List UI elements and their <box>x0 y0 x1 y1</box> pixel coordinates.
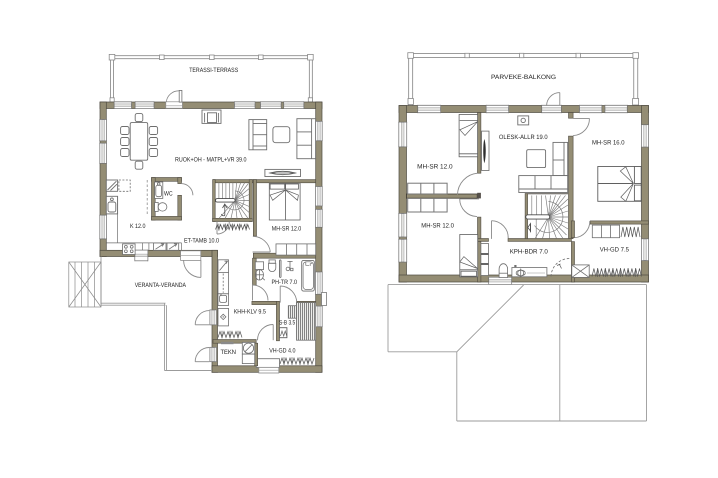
svg-text:MH-SR 12.0: MH-SR 12.0 <box>421 223 454 230</box>
svg-text:PARVEKE-BALKONG: PARVEKE-BALKONG <box>491 74 556 81</box>
svg-text:TEKN: TEKN <box>221 349 237 356</box>
svg-text:OLESK-ALLR 19.0: OLESK-ALLR 19.0 <box>499 134 548 141</box>
svg-text:VERANTA-VERANDA: VERANTA-VERANDA <box>135 282 187 289</box>
svg-text:S-B 3.5: S-B 3.5 <box>279 320 296 327</box>
svg-text:ET-TAMB 10.0: ET-TAMB 10.0 <box>184 238 219 245</box>
svg-text:WC: WC <box>164 191 173 198</box>
svg-text:PH-TR 7.0: PH-TR 7.0 <box>272 279 298 286</box>
svg-text:VH-GD 7.5: VH-GD 7.5 <box>600 246 630 253</box>
svg-text:KPH-BDR 7.0: KPH-BDR 7.0 <box>510 249 549 256</box>
svg-text:MH-SR 16.0: MH-SR 16.0 <box>592 140 625 147</box>
svg-text:K 12.0: K 12.0 <box>130 223 146 230</box>
svg-text:MH-SR 12.0: MH-SR 12.0 <box>272 226 302 233</box>
svg-text:TERASSI-TERRASS: TERASSI-TERRASS <box>189 67 238 74</box>
svg-text:VH-GD 4.0: VH-GD 4.0 <box>269 348 296 355</box>
svg-text:KHH-KLV 9.5: KHH-KLV 9.5 <box>234 309 267 316</box>
svg-text:MH-SR 12.0: MH-SR 12.0 <box>417 163 453 170</box>
svg-text:RUOK+OH - MATPL+VR 39.0: RUOK+OH - MATPL+VR 39.0 <box>175 157 247 164</box>
